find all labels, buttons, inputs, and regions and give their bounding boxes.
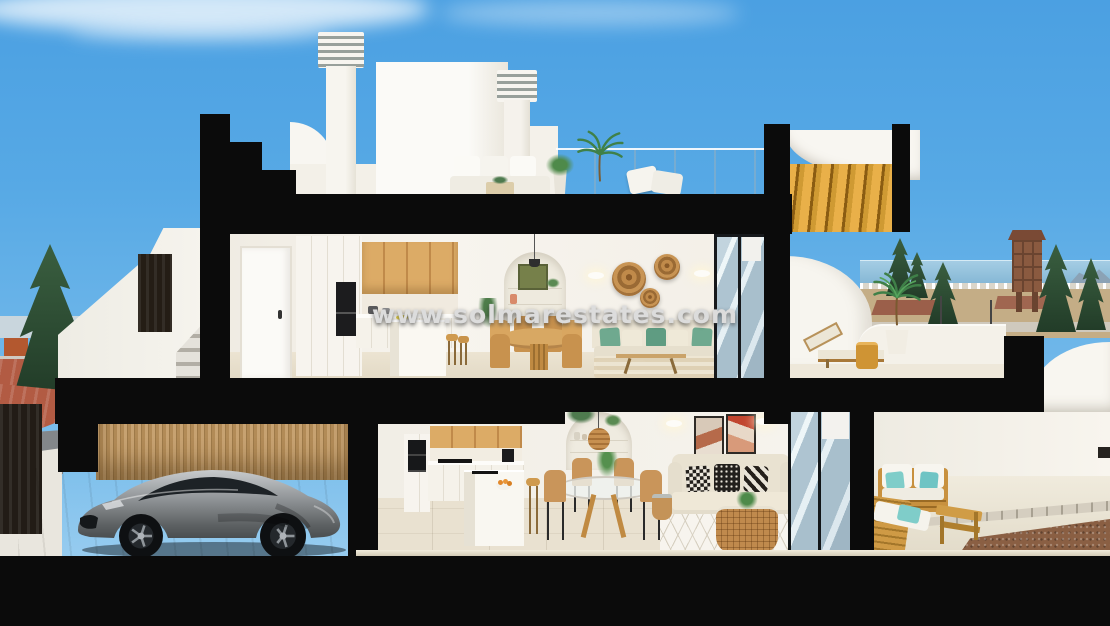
island-sink [472,471,498,474]
niche-vase [582,434,587,440]
cut-right-chunk [1004,336,1044,412]
cut-column-lower-left [348,412,378,558]
wall-basket [654,254,680,280]
cut-mid-slab-left [55,378,565,424]
chimney-shaft [326,66,356,198]
door-mullion [818,410,821,556]
property-cutaway-render: www.solmarestates.com [0,0,1110,626]
stair-gate [138,254,172,332]
stool-leg [448,341,450,365]
built-in-oven [336,282,356,314]
pendant-cord [534,230,535,260]
kitchen-upper-cabinets [430,426,522,448]
bar-stool [526,478,540,486]
roof-table-plant [492,176,508,184]
wall-sconce [666,420,682,427]
stool-leg [454,341,456,365]
stool-leg [529,486,531,534]
watchtower-body [1012,240,1042,292]
wall-sconce [694,270,710,277]
watchtower-leg [1016,292,1022,312]
pendant-cord [598,410,599,430]
built-in-oven [408,456,426,472]
chair-leg [643,502,645,540]
watermark: www.solmarestates.com [372,300,738,329]
terrace-side-table [856,342,878,369]
roller-blind [822,411,849,439]
bar-stool [458,336,469,343]
terrace-floor [788,364,1006,378]
kitchen-upper-cabinets [362,242,458,294]
roof-sofa-cushion [454,156,480,178]
patterned-pillow [743,465,768,492]
floor-basket [652,494,672,520]
roof-plant [546,154,574,176]
built-in-microwave [336,314,356,336]
roof-palm [576,124,624,194]
green-pillow [646,328,666,348]
table-pedestal [530,344,548,370]
niche-artwork [518,264,548,290]
wall-basket [612,262,646,296]
orange [507,481,512,486]
chimney-cap [318,32,364,68]
chair-leg [562,502,564,540]
lounger-leg [826,359,829,368]
chimney-cap [497,70,537,102]
cut-pergola-column [892,124,910,232]
chair-leg [547,502,549,540]
sports-car [68,444,354,562]
cloud [440,0,740,26]
bench-leg [974,512,978,540]
entry-door [240,246,292,380]
patterned-pillow [685,465,710,492]
kitchen-island [464,470,524,546]
car-wheel-front [119,514,163,558]
cut-column-lower-right [850,408,874,558]
car-grille [80,515,98,529]
cut-left-column [200,114,230,382]
stool-leg [460,343,462,365]
door-mullion [738,236,741,378]
watchtower-roof [1008,230,1046,240]
niche-plant [604,414,622,427]
rattan-pendant-lamp [588,428,610,450]
potted-palm [872,266,922,338]
roof-lounger [650,170,683,196]
roller-blind [742,237,761,261]
cloud [70,22,330,42]
cut-left-step-down [58,378,98,472]
cooktop [438,459,472,463]
bar-stool [446,334,458,341]
cut-mid-slab-right [560,378,1032,412]
niche-vase [574,432,580,440]
bench-leg [940,516,944,544]
watchtower-leg [1032,292,1038,312]
stool-leg [465,343,467,365]
table-plant [596,452,618,478]
table-plant [736,492,758,510]
gallery-frame [726,414,756,454]
wood-pergola [788,164,892,232]
patterned-pillow [714,464,740,492]
dining-chair [544,470,566,502]
rattan-coffee-table [716,506,778,553]
pendant-shade [529,259,540,267]
wall-sconce [588,272,604,279]
wall-slot [1098,447,1110,458]
roof-sofa-cushion [510,156,536,178]
gallery-frame [694,416,724,456]
coffee-table-top [616,354,686,358]
cut-roof-slab [200,194,792,234]
built-in-oven [408,440,426,456]
niche-plant [546,278,560,288]
roof-sofa-cushion [482,156,508,178]
coffee-machine [502,449,514,462]
stool-leg [536,486,538,534]
door-handle [278,310,282,319]
cut-ground-slab [0,556,1110,626]
